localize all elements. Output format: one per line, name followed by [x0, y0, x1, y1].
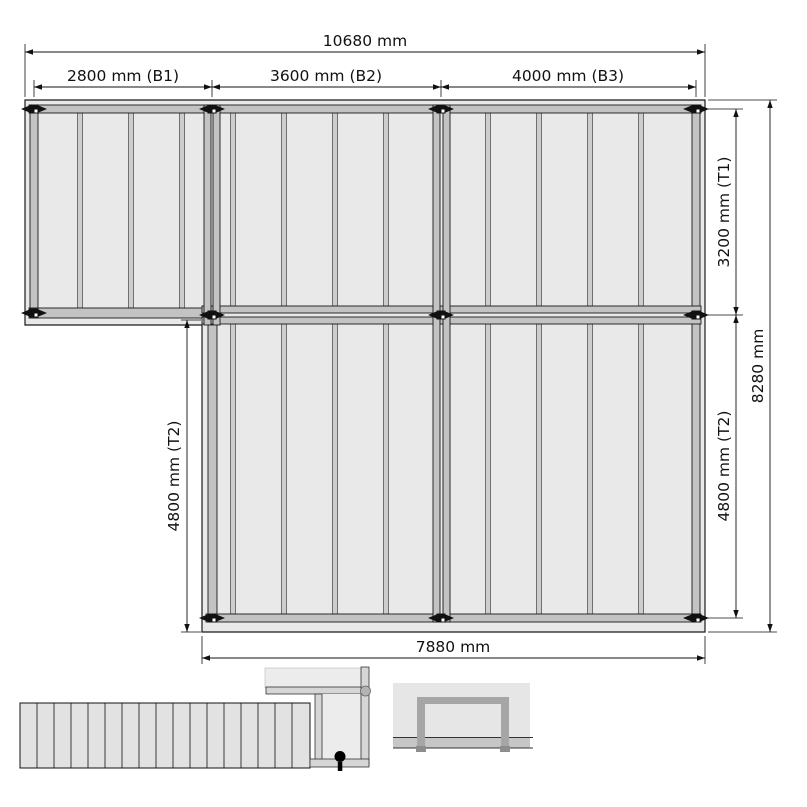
- joist: [180, 113, 185, 308]
- joist: [282, 324, 287, 614]
- joist: [78, 113, 83, 308]
- post-notch: [697, 619, 700, 622]
- joist: [639, 324, 644, 614]
- joist: [486, 113, 491, 306]
- label-bay-3: 4000 mm (B3): [512, 67, 624, 85]
- portal-foot-right: [500, 746, 510, 752]
- beam-bay2-vertical-b: [443, 105, 450, 622]
- post-notch: [213, 619, 216, 622]
- portal-post-left: [417, 697, 425, 746]
- cad-canvas: 10680 mm 2800 mm (B1) 3600 mm (B2) 4000 …: [0, 0, 807, 807]
- joist: [384, 113, 389, 306]
- label-depth-t2-left: 4800 mm (T2): [165, 421, 183, 532]
- post-notch: [697, 316, 700, 319]
- label-bottom-width: 7880 mm: [416, 638, 491, 656]
- joist: [231, 113, 236, 306]
- beam-bay1-vertical-a: [204, 105, 211, 325]
- post-notch: [442, 316, 445, 319]
- beam-b1-bottom: [29, 308, 217, 318]
- slat-band: [20, 703, 310, 768]
- plan-view: [21, 100, 709, 632]
- beam-left-lower: [208, 325, 217, 622]
- anchor-stem: [338, 762, 343, 771]
- joist: [588, 324, 593, 614]
- detail-front-elevation: [393, 683, 533, 752]
- joist: [486, 324, 491, 614]
- beam-bay2-vertical-a: [433, 105, 440, 622]
- post-notch: [213, 110, 216, 113]
- corner-post: [361, 667, 369, 765]
- post-notch: [442, 619, 445, 622]
- connector-bolt: [361, 686, 371, 696]
- label-depth-t1: 3200 mm (T1): [715, 157, 733, 268]
- detail-side-elevation: [20, 667, 371, 771]
- joist: [333, 324, 338, 614]
- beam-mid-horizontal-a: [202, 306, 701, 313]
- fascia-rail: [266, 687, 361, 694]
- joist: [384, 324, 389, 614]
- label-overall-width: 10680 mm: [323, 32, 407, 50]
- label-overall-depth: 8280 mm: [749, 329, 767, 404]
- beam-bay1-vertical-b: [213, 105, 220, 325]
- label-bay-2: 3600 mm (B2): [270, 67, 382, 85]
- post-notch: [697, 110, 700, 113]
- anchor-bolt: [335, 751, 346, 762]
- label-bay-1: 2800 mm (B1): [67, 67, 179, 85]
- portal-foot-left: [416, 746, 426, 752]
- beam-left-upper: [30, 105, 38, 318]
- joist: [588, 113, 593, 306]
- beam-mid-horizontal-b: [202, 317, 701, 324]
- post-notch: [35, 314, 38, 317]
- joist: [639, 113, 644, 306]
- joist: [537, 113, 542, 306]
- post-cavity: [322, 694, 362, 760]
- beam-top: [29, 105, 701, 113]
- joist: [537, 324, 542, 614]
- post-notch: [35, 110, 38, 113]
- joist: [333, 113, 338, 306]
- post-notch: [442, 110, 445, 113]
- deck-plan-drawing: 10680 mm 2800 mm (B1) 3600 mm (B2) 4000 …: [0, 0, 807, 807]
- portal-post-right: [501, 697, 509, 746]
- joist: [129, 113, 134, 308]
- inner-post: [315, 694, 322, 760]
- deck-surface: [25, 100, 705, 632]
- post-notch: [213, 316, 216, 319]
- beam-right: [692, 105, 700, 622]
- portal-beam: [417, 697, 509, 704]
- deck-platform-side: [265, 668, 362, 688]
- joist: [282, 113, 287, 306]
- label-depth-t2-right: 4800 mm (T2): [715, 411, 733, 522]
- joist: [231, 324, 236, 614]
